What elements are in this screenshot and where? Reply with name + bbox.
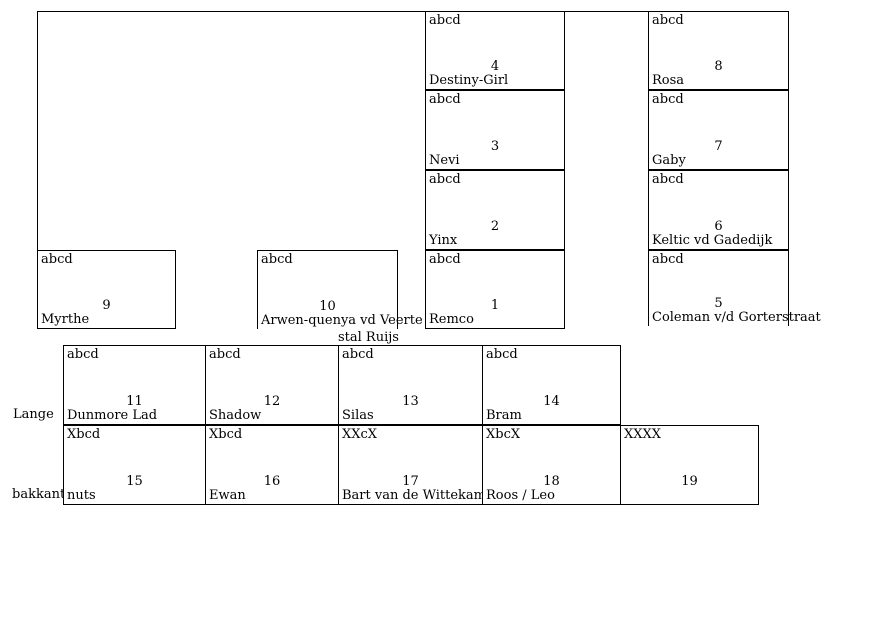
stall-11-number: 11 [64, 394, 205, 409]
stall-3-corner-label: abcd [429, 92, 461, 107]
stall-19-number: 19 [621, 474, 758, 489]
stall-1[interactable]: abcd 1 Remco [425, 250, 565, 329]
stall-17-name: Bart van de Wittekamp [342, 488, 494, 503]
stall-16[interactable]: Xbcd 16 Ewan [205, 425, 339, 505]
stall-16-corner-label: Xbcd [209, 427, 242, 442]
stall-15[interactable]: Xbcd 15 nuts [63, 425, 206, 505]
stall-14-name: Bram [486, 408, 522, 423]
stall-8-name: Rosa [652, 73, 684, 88]
stall-9-corner-label: abcd [41, 252, 73, 267]
stall-3-number: 3 [426, 139, 564, 154]
row-label-lange: Lange [13, 407, 54, 422]
stall-18-number: 18 [483, 474, 620, 489]
stall-1-number: 1 [426, 298, 564, 313]
stall-5[interactable]: abcd 5 Coleman v/d Gorterstraat [648, 250, 789, 326]
stall-17-corner-label: XXcX [342, 427, 377, 442]
stall-12-number: 12 [206, 394, 338, 409]
stall-18[interactable]: XbcX 18 Roos / Leo [482, 425, 621, 505]
stall-17[interactable]: XXcX 17 Bart van de Wittekamp [338, 425, 483, 505]
stall-5-corner-label: abcd [652, 252, 684, 267]
stall-8-corner-label: abcd [652, 13, 684, 28]
stall-9[interactable]: abcd 9 Myrthe [37, 250, 176, 329]
stall-18-name: Roos / Leo [486, 488, 555, 503]
stall-8[interactable]: abcd 8 Rosa [648, 11, 789, 90]
stall-13-corner-label: abcd [342, 347, 374, 362]
stall-4-name: Destiny-Girl [429, 73, 508, 88]
stall-16-name: Ewan [209, 488, 246, 503]
stall-15-corner-label: Xbcd [67, 427, 100, 442]
stall-15-name: nuts [67, 488, 96, 503]
row-label-bakkant: bakkant [12, 487, 65, 502]
stall-11-corner-label: abcd [67, 347, 99, 362]
stall-9-number: 9 [38, 298, 175, 313]
stall-1-name: Remco [429, 312, 474, 327]
stall-10-corner-label: abcd [261, 252, 293, 267]
stall-3-name: Nevi [429, 153, 460, 168]
stall-13-number: 13 [339, 394, 482, 409]
stall-12[interactable]: abcd 12 Shadow [205, 345, 339, 425]
stall-4-corner-label: abcd [429, 13, 461, 28]
stall-11-name: Dunmore Lad [67, 408, 157, 423]
stall-10-number: 10 [258, 299, 397, 314]
stall-6-number: 6 [649, 219, 788, 234]
stable-layout-diagram: abcd 4 Destiny-Girl abcd 3 Nevi abcd 2 Y… [0, 0, 877, 620]
stall-12-name: Shadow [209, 408, 261, 423]
stall-4[interactable]: abcd 4 Destiny-Girl [425, 11, 565, 90]
stall-14-corner-label: abcd [486, 347, 518, 362]
stall-6-corner-label: abcd [652, 172, 684, 187]
stall-19-corner-label: XXXX [624, 427, 661, 442]
stall-2-corner-label: abcd [429, 172, 461, 187]
stall-7-number: 7 [649, 139, 788, 154]
stall-8-number: 8 [649, 59, 788, 74]
stall-7[interactable]: abcd 7 Gaby [648, 90, 789, 170]
stall-4-number: 4 [426, 59, 564, 74]
stall-2[interactable]: abcd 2 Yinx [425, 170, 565, 250]
stall-18-corner-label: XbcX [486, 427, 520, 442]
stall-14-number: 14 [483, 394, 620, 409]
stall-10-name-line2: stal Ruijs [338, 330, 399, 345]
stall-7-name: Gaby [652, 153, 686, 168]
stall-15-number: 15 [64, 474, 205, 489]
stall-10[interactable]: abcd 10 Arwen-quenya vd Veerte [257, 250, 398, 329]
stall-6-name: Keltic vd Gadedijk [652, 233, 772, 248]
stall-17-number: 17 [339, 474, 482, 489]
stall-2-name: Yinx [429, 233, 457, 248]
stall-1-corner-label: abcd [429, 252, 461, 267]
stall-11[interactable]: abcd 11 Dunmore Lad [63, 345, 206, 425]
stall-14[interactable]: abcd 14 Bram [482, 345, 621, 425]
stall-16-number: 16 [206, 474, 338, 489]
stall-13-name: Silas [342, 408, 374, 423]
stall-10-name: Arwen-quenya vd Veerte [261, 313, 423, 328]
stall-12-corner-label: abcd [209, 347, 241, 362]
stall-6[interactable]: abcd 6 Keltic vd Gadedijk [648, 170, 789, 250]
stall-5-name: Coleman v/d Gorterstraat [652, 310, 821, 325]
stall-9-name: Myrthe [41, 312, 89, 327]
stall-7-corner-label: abcd [652, 92, 684, 107]
arena-left-boundary-line [37, 11, 38, 250]
stall-13[interactable]: abcd 13 Silas [338, 345, 483, 425]
stall-5-number: 5 [649, 296, 788, 311]
stall-3[interactable]: abcd 3 Nevi [425, 90, 565, 170]
stall-19[interactable]: XXXX 19 [620, 425, 759, 505]
stall-2-number: 2 [426, 219, 564, 234]
